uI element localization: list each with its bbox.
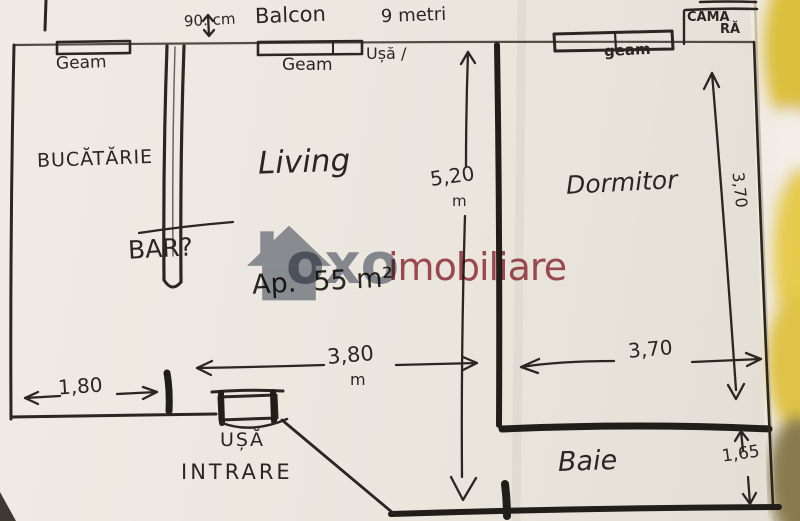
bathroom-wall [502,426,769,429]
watermark-brand: oxo [286,236,399,295]
dim-living-height-unit: m [452,194,467,210]
dim-living-width: 3,80 [326,342,375,368]
floorplan-photo: 90. cm Balcon 9 metri Geam Geam geam Ușă… [0,0,800,521]
living-window-label: Geam [282,57,333,75]
dim-370v [704,73,744,399]
bar-label: BAR? [127,234,193,264]
entrance-door-label-line1: UȘĂ [220,431,265,451]
dim-370h-left [521,359,614,373]
central-wall [497,45,499,425]
entrance-door [167,373,393,513]
kitchen-window-label: Geam [56,54,107,74]
balcony-width-label: 90. cm [184,12,236,30]
bedroom-window-label: geam [604,42,651,60]
dim-165-down [743,477,756,504]
dim-370h-right [692,353,761,366]
door-leaf [219,395,277,420]
dim-bedroom-width: 3,70 [627,337,673,362]
dim-380-left [197,361,324,375]
dim-bedroom-depth: 3,70 [729,171,749,208]
dim-180-left [25,392,60,404]
dim-380-right [396,357,477,370]
balcony-length-label: 9 metri [381,6,447,27]
door-hinge-left [221,393,222,423]
door-hinge-right [273,392,274,421]
dim-living-width-unit: m [350,372,366,389]
balcony-end-mark [45,0,46,30]
balcony-door-label: Ușă / [366,46,406,63]
bar-counter-line [139,222,233,233]
dim-520-upper [461,52,475,166]
bedroom-label: Dormitor [565,167,678,199]
bottom-left-wall [11,414,216,417]
living-label: Living [257,144,350,180]
balcony-label: Balcon [255,3,327,28]
dim-kitchen-front: 1,80 [57,374,103,398]
kitchen-label: BUCĂTĂRIE [37,148,154,172]
entrance-door-label-line2: INTRARE [181,461,293,483]
divider-wall-end [164,280,181,287]
door-swing-line [282,420,393,513]
bathroom-label: Baie [558,447,618,477]
bottom-wall [391,507,779,514]
left-wall [11,45,14,419]
kitchen-divider-wall-3 [173,47,175,256]
door-jamb [167,373,169,411]
pantry-label-line2: RĂ [720,23,740,37]
corner-shadow [0,492,16,521]
watermark-suffix: imobiliare [388,248,566,288]
bathroom-door-stub [505,484,507,516]
dim-180-right [117,387,157,399]
pantry-top-line-2 [700,2,756,3]
